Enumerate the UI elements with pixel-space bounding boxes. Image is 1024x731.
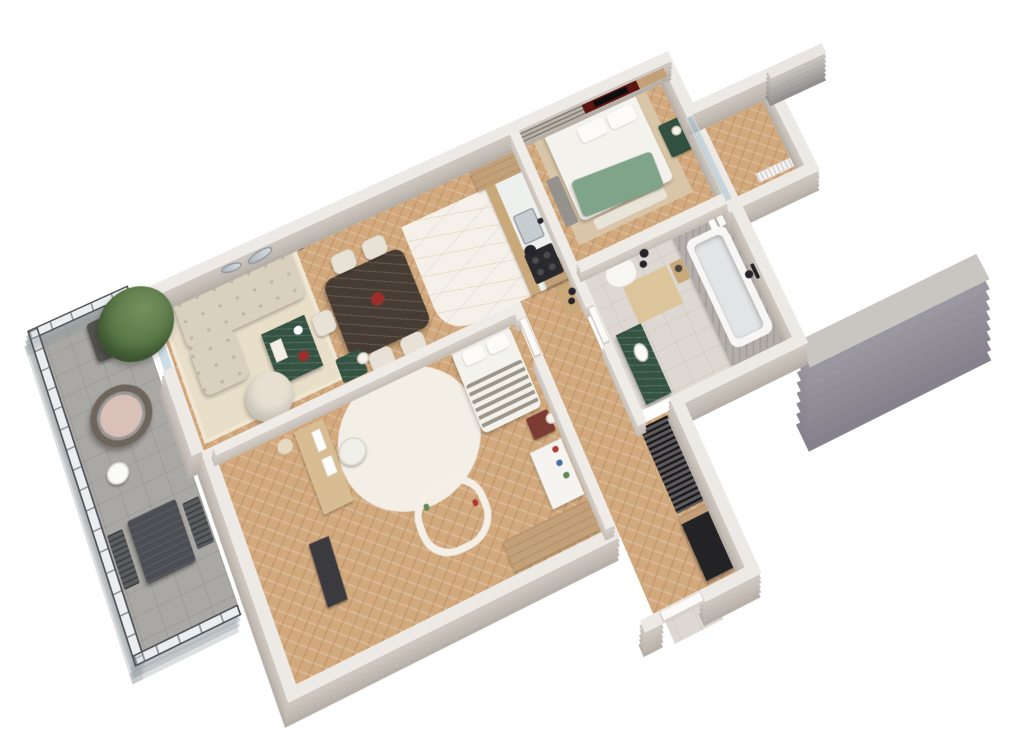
apartment-3d-floor-plan	[13, 0, 1024, 731]
wall-stub-top	[766, 43, 826, 78]
wall-wing-northeast	[797, 254, 989, 368]
floor-plan-screenshot	[0, 0, 1024, 731]
